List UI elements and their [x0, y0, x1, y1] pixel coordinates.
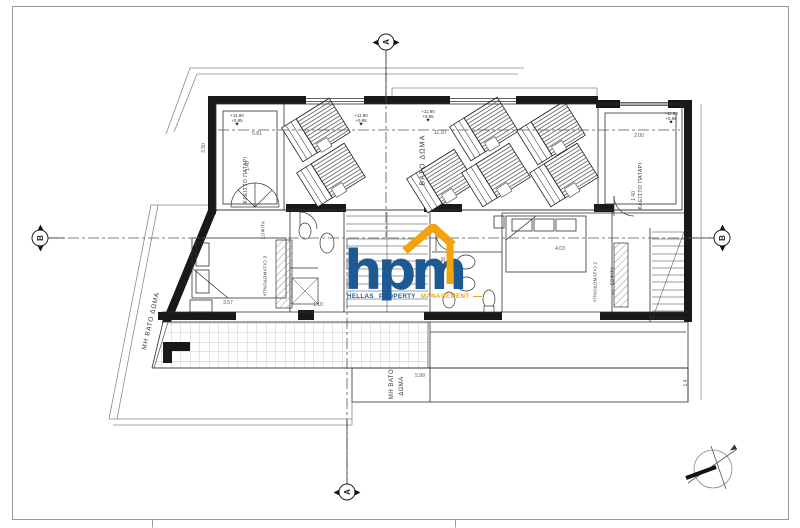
elevation-marker: +11.80+0.95✦ — [230, 114, 244, 128]
label-mi-vato-doma-line2: ΔΩΜΑ — [399, 376, 405, 396]
floor-plan-page: ΒΑΤΟ ΔΩΜΑΚΛΕΙΣΤΟ ΠΑΤΑΡΙΚΛΕΙΣΤΟ ΠΑΤΑΡΙΜΗ … — [0, 0, 800, 528]
elevation-marker: +11.80+0.95✦ — [354, 114, 368, 128]
section-marker-left: Β — [32, 230, 49, 247]
section-marker-bottom: Α — [339, 484, 356, 501]
dimension-label: 5.81 — [252, 131, 262, 137]
label-mi-vato-doma-line1: ΜΗ ΒΑΤΟ — [389, 369, 395, 399]
dimension-label: 2.00 — [634, 133, 644, 139]
dimension-label: 1.40 — [245, 161, 251, 171]
elevation-marker: +11.80+0.95✦ — [664, 112, 678, 126]
label-unit-a1: Α1 — [611, 289, 616, 295]
label-vato-doma: ΒΑΤΟ ΔΩΜΑ — [420, 134, 427, 185]
dimension-label: 1.40 — [631, 191, 637, 201]
label-mi-vato-doma-left: ΜΗ ΒΑΤΟ ΔΩΜΑ — [141, 291, 161, 350]
logo-word-management: MANAGEMENT — [421, 293, 470, 300]
dimension-label: 1.10 — [313, 302, 323, 308]
logo-dash — [473, 296, 482, 298]
dimension-label: 3.57 — [223, 300, 233, 306]
section-marker-right: Β — [714, 230, 731, 247]
dimension-label: 4.03 — [555, 246, 565, 252]
label-sofita-left: ΣΟΦΙΤΑ — [261, 221, 266, 239]
dimension-label: 11.20 — [434, 130, 446, 136]
section-marker-top: Α — [378, 34, 395, 51]
label-ypnodomatio-2: ΥΠΝΟΔΩΜΑΤΙΟ 2 — [593, 262, 598, 303]
hpm-logo-watermark: hpm HELLAS PROPERTY MANAGEMENT — [344, 228, 460, 300]
label-ypnodomatio-3: ΥΠΝΟΔΩΜΑΤΙΟ 3 — [263, 256, 268, 297]
dimension-label: 1.4 — [683, 380, 689, 387]
label-kleisto-patari-right: ΚΛΕΙΣΤΟ ΠΑΤΑΡΙ — [638, 162, 644, 209]
logo-word-hellas: HELLAS — [347, 293, 374, 300]
logo-word-property: PROPERTY — [379, 293, 416, 300]
dimension-label: 5.99 — [415, 373, 425, 379]
logo-house-icon — [402, 224, 456, 288]
dimension-label: 3.90 — [201, 143, 207, 153]
logo-wordmark: HELLAS PROPERTY MANAGEMENT — [347, 293, 485, 300]
elevation-marker: +11.80+0.95✦ — [421, 110, 435, 124]
label-sofita-right: ΣΟΦΙΤΑ — [610, 267, 615, 285]
